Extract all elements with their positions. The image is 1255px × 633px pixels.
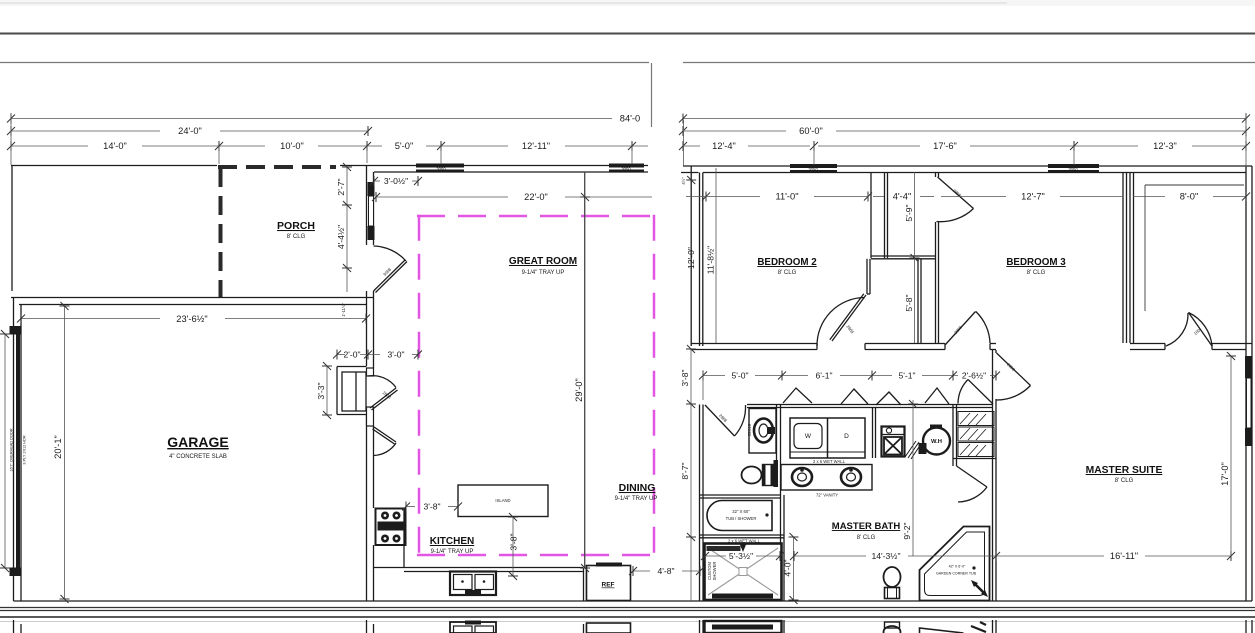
svg-text:4" CONCRETE SLAB: 4" CONCRETE SLAB: [169, 454, 227, 460]
svg-text:5'-3½": 5'-3½": [729, 551, 753, 561]
svg-text:11'-8½": 11'-8½": [706, 246, 716, 274]
svg-text:12'-7": 12'-7": [1021, 192, 1045, 202]
svg-text:8' CLG: 8' CLG: [287, 234, 306, 240]
svg-text:MASTER BATH: MASTER BATH: [832, 521, 901, 532]
svg-text:D: D: [844, 433, 849, 440]
svg-text:2'-6½": 2'-6½": [962, 371, 986, 381]
svg-text:16'-11": 16'-11": [1110, 551, 1138, 561]
svg-text:2'-7": 2'-7": [336, 178, 346, 195]
svg-text:14'-0": 14'-0": [103, 141, 127, 151]
svg-text:5'-0": 5'-0": [731, 371, 748, 381]
svg-text:KITCHEN: KITCHEN: [430, 536, 474, 547]
svg-text:29'-0": 29'-0": [574, 378, 584, 402]
svg-text:5'-8": 5'-8": [904, 294, 914, 311]
svg-text:23'-6½": 23'-6½": [176, 314, 207, 324]
svg-text:1'-11½": 1'-11½": [341, 303, 346, 317]
svg-text:2 x 6 WET WALL: 2 x 6 WET WALL: [813, 459, 846, 464]
svg-text:4'-8": 4'-8": [657, 566, 674, 576]
svg-text:42" X 6'-0": 42" X 6'-0": [949, 565, 967, 569]
svg-text:2'-0": 2'-0": [343, 350, 360, 360]
svg-text:3 PLY 2X12 HDR: 3 PLY 2X12 HDR: [23, 435, 27, 464]
svg-text:17'-6": 17'-6": [933, 141, 957, 151]
svg-text:11'-0": 11'-0": [776, 192, 799, 202]
svg-text:60'-0": 60'-0": [799, 126, 823, 136]
svg-text:14'-3½": 14'-3½": [871, 551, 900, 561]
svg-text:MASTER SUITE: MASTER SUITE: [1086, 465, 1163, 476]
svg-text:8' CLG: 8' CLG: [857, 535, 876, 541]
svg-text:BEDROOM 3: BEDROOM 3: [1006, 257, 1066, 268]
svg-text:3'-8": 3'-8": [423, 502, 440, 512]
svg-text:6'-1": 6'-1": [815, 371, 832, 381]
svg-text:4'-4": 4'-4": [893, 192, 912, 202]
svg-text:4'-0": 4'-0": [783, 559, 793, 576]
svg-text:17'-0": 17'-0": [1220, 462, 1230, 486]
svg-text:3050: 3050: [808, 167, 818, 172]
svg-text:3'-8": 3'-8": [680, 369, 690, 386]
svg-text:8' CLG: 8' CLG: [1027, 270, 1046, 276]
svg-text:GARAGE: GARAGE: [167, 434, 228, 450]
svg-text:ISLAND: ISLAND: [495, 498, 510, 503]
svg-text:10'-0": 10'-0": [280, 141, 304, 151]
svg-text:22X19: 22X19: [747, 423, 752, 436]
svg-text:4½": 4½": [681, 177, 686, 185]
svg-text:8'-0": 8'-0": [1180, 192, 1199, 202]
svg-text:BEDROOM 2: BEDROOM 2: [757, 257, 817, 268]
svg-text:20'-1": 20'-1": [53, 435, 63, 459]
svg-text:22'-0": 22'-0": [524, 192, 548, 202]
svg-text:84'-0: 84'-0: [620, 114, 640, 124]
svg-text:SHOWER: SHOWER: [712, 562, 717, 581]
svg-text:9-1/4" TRAY UP: 9-1/4" TRAY UP: [615, 496, 658, 502]
svg-text:8'-7": 8'-7": [680, 462, 690, 479]
svg-text:W.H: W.H: [931, 439, 942, 445]
svg-text:3'-8": 3'-8": [509, 533, 519, 550]
svg-text:5'-9": 5'-9": [904, 204, 914, 221]
svg-text:8' CLG: 8' CLG: [778, 270, 797, 276]
svg-text:3050: 3050: [436, 167, 446, 172]
svg-text:16'7" OVERHEAD DOOR: 16'7" OVERHEAD DOOR: [10, 428, 14, 471]
svg-text:3'-3": 3'-3": [316, 382, 326, 399]
svg-text:9'-2": 9'-2": [902, 522, 912, 539]
svg-text:4'-4½": 4'-4½": [336, 225, 346, 249]
svg-text:TUB / SHOWER: TUB / SHOWER: [726, 516, 757, 521]
svg-text:3050: 3050: [621, 167, 631, 172]
svg-text:REF: REF: [602, 582, 615, 589]
svg-text:9-1/4" TRAY UP: 9-1/4" TRAY UP: [522, 270, 565, 276]
svg-text:DINING: DINING: [619, 482, 656, 494]
svg-text:32" X 60": 32" X 60": [732, 509, 750, 514]
svg-text:GARDEN CORNER TUB: GARDEN CORNER TUB: [936, 572, 977, 576]
svg-text:24'-0": 24'-0": [178, 126, 202, 136]
svg-text:W: W: [805, 433, 812, 440]
svg-text:3050: 3050: [1068, 167, 1078, 172]
svg-text:8' CLG: 8' CLG: [1115, 478, 1134, 484]
svg-text:PORCH: PORCH: [277, 220, 315, 232]
svg-text:5'-1": 5'-1": [898, 371, 915, 381]
svg-text:9-1/4" TRAY UP: 9-1/4" TRAY UP: [431, 549, 474, 555]
svg-text:12'-4": 12'-4": [712, 141, 736, 151]
svg-text:12'-11": 12'-11": [522, 141, 550, 151]
svg-text:72" VANITY: 72" VANITY: [816, 493, 838, 498]
svg-text:3'-0½": 3'-0½": [384, 176, 408, 186]
svg-text:5'-0": 5'-0": [395, 141, 414, 151]
svg-text:12'-3": 12'-3": [1153, 141, 1177, 151]
svg-text:12'-0": 12'-0": [686, 247, 696, 269]
svg-text:3'-0": 3'-0": [387, 350, 404, 360]
svg-text:GREAT ROOM: GREAT ROOM: [509, 256, 577, 267]
